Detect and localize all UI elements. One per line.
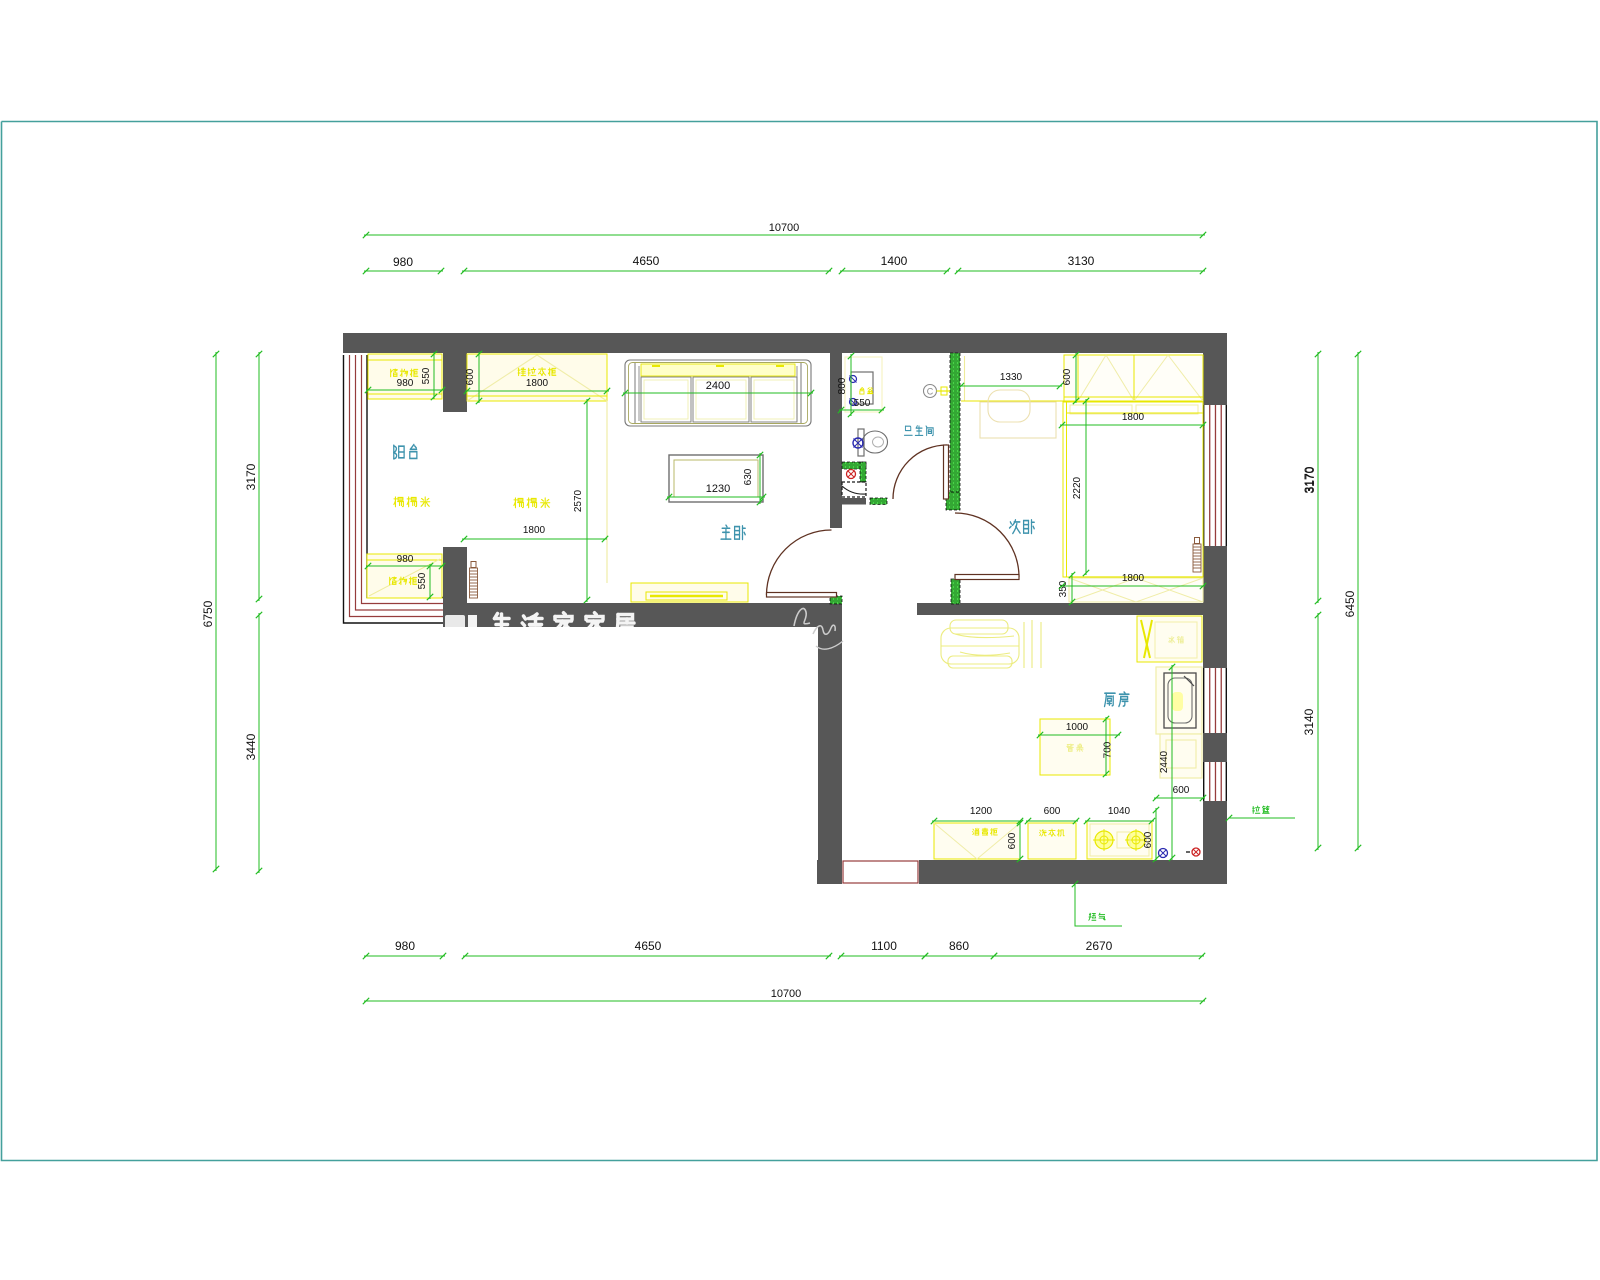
svg-text:C: C bbox=[927, 387, 934, 397]
svg-text:3170: 3170 bbox=[1303, 466, 1317, 493]
svg-text:3140: 3140 bbox=[1302, 708, 1316, 735]
svg-text:980: 980 bbox=[393, 255, 413, 269]
svg-text:1400: 1400 bbox=[881, 254, 908, 268]
svg-text:980: 980 bbox=[395, 939, 415, 953]
svg-text:630: 630 bbox=[743, 468, 754, 485]
svg-text:2440: 2440 bbox=[1159, 750, 1170, 773]
svg-text:600: 600 bbox=[1173, 785, 1190, 796]
svg-text:700: 700 bbox=[1103, 741, 1114, 758]
svg-text:2670: 2670 bbox=[1086, 939, 1113, 953]
svg-text:10700: 10700 bbox=[769, 222, 800, 234]
svg-text:600: 600 bbox=[1007, 832, 1018, 849]
svg-text:10700: 10700 bbox=[771, 988, 802, 1000]
svg-text:1100: 1100 bbox=[871, 939, 897, 953]
svg-text:1000: 1000 bbox=[1066, 722, 1089, 733]
svg-text:2400: 2400 bbox=[706, 380, 730, 392]
svg-text:600: 600 bbox=[1143, 831, 1154, 848]
svg-text:1800: 1800 bbox=[523, 525, 546, 536]
svg-text:550: 550 bbox=[421, 367, 432, 384]
svg-text:1800: 1800 bbox=[1122, 573, 1145, 584]
svg-text:550: 550 bbox=[417, 572, 428, 589]
svg-text:2220: 2220 bbox=[1072, 476, 1083, 499]
svg-text:1800: 1800 bbox=[1122, 412, 1145, 423]
svg-text:600: 600 bbox=[1044, 806, 1061, 817]
svg-text:600: 600 bbox=[465, 368, 476, 385]
svg-text:3440: 3440 bbox=[244, 733, 258, 760]
svg-text:860: 860 bbox=[949, 939, 969, 953]
svg-text:600: 600 bbox=[1062, 368, 1073, 385]
svg-text:3130: 3130 bbox=[1068, 254, 1095, 268]
svg-text:980: 980 bbox=[397, 378, 414, 389]
svg-text:1230: 1230 bbox=[706, 483, 730, 495]
svg-text:4650: 4650 bbox=[635, 939, 662, 953]
svg-text:1330: 1330 bbox=[1000, 372, 1023, 383]
svg-text:550: 550 bbox=[854, 398, 871, 409]
svg-text:6750: 6750 bbox=[201, 600, 215, 627]
svg-text:2570: 2570 bbox=[573, 489, 584, 512]
svg-text:4650: 4650 bbox=[633, 254, 660, 268]
svg-text:3170: 3170 bbox=[244, 463, 258, 490]
svg-text:980: 980 bbox=[397, 554, 414, 565]
svg-text:1800: 1800 bbox=[526, 378, 549, 389]
svg-text:1200: 1200 bbox=[970, 806, 993, 817]
svg-text:1040: 1040 bbox=[1108, 806, 1131, 817]
svg-text:800: 800 bbox=[837, 377, 848, 394]
svg-text:6450: 6450 bbox=[1343, 590, 1357, 617]
